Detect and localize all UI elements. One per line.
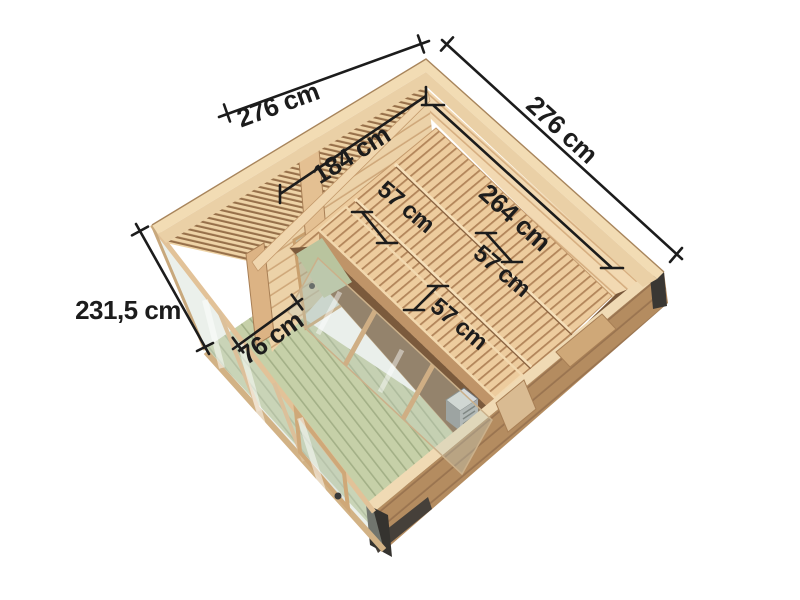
entry-door-handle xyxy=(335,493,342,500)
diagram-canvas: 276 cm 276 cm 231,5 cm 76 cm 184 cm 264 … xyxy=(0,0,800,600)
dimension-label-wall-height: 231,5 cm xyxy=(75,295,181,325)
sauna-dimension-diagram: 276 cm 276 cm 231,5 cm 76 cm 184 cm 264 … xyxy=(0,0,800,600)
